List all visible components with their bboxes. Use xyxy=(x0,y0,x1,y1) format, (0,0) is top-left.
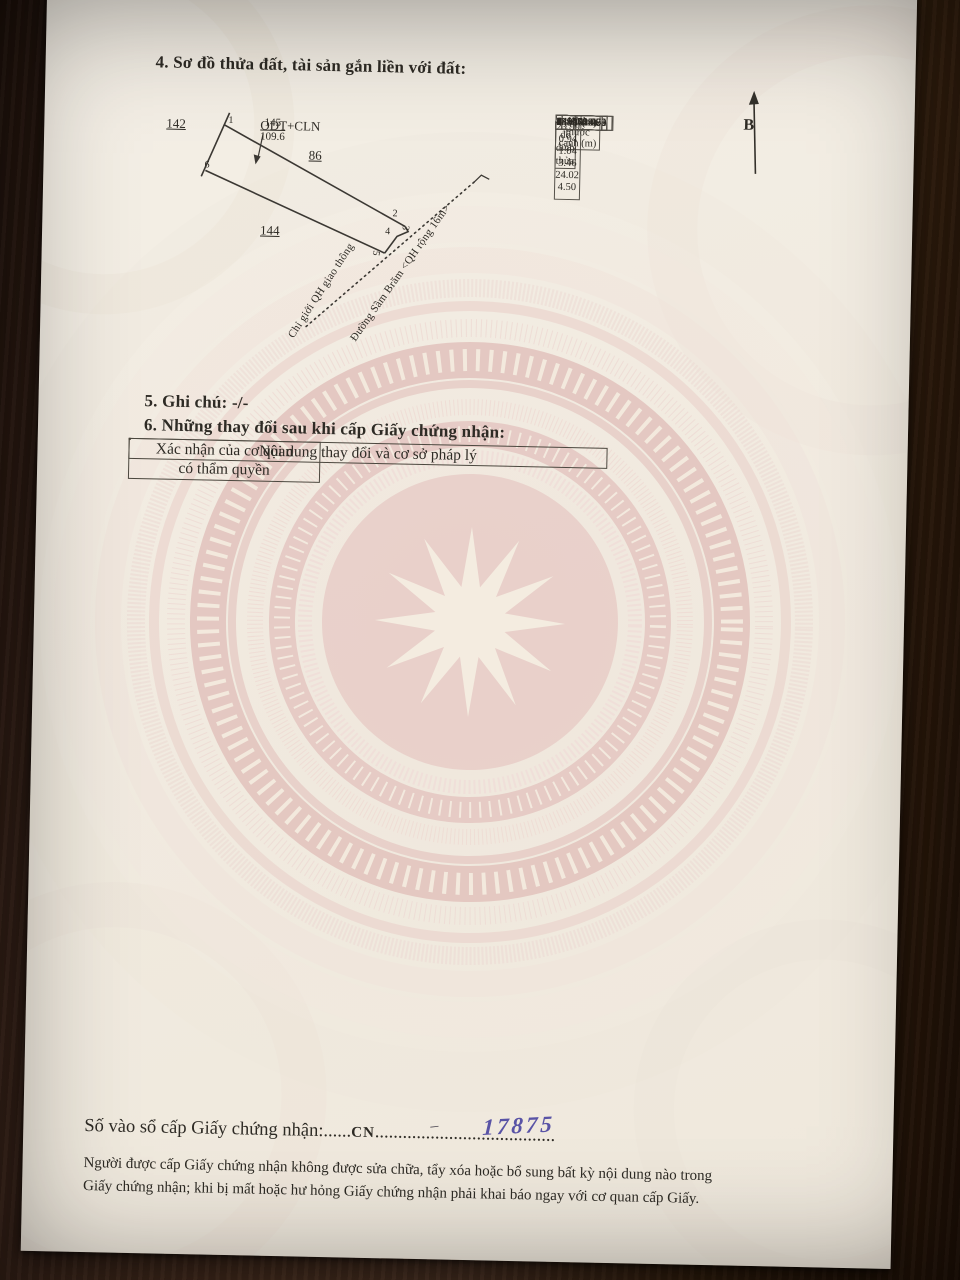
vertex-label-5: 5 xyxy=(370,250,381,257)
serial-prefix: CN xyxy=(351,1125,375,1141)
adjacent-parcel-142-label: 142 xyxy=(166,116,186,132)
planning-boundary-line xyxy=(306,172,489,331)
handwritten-serial-number: 17875 xyxy=(482,1111,556,1141)
changes-confirmation-cell xyxy=(129,438,131,440)
serial-label: Số vào sổ cấp Giấy chứng nhận: xyxy=(84,1116,324,1141)
coordinate-table: Tọa độ đỉnh thửa Kích thước cạnh (m) Đỉn… xyxy=(556,115,736,119)
handwritten-dash: – xyxy=(429,1117,439,1136)
certificate-page: 4. Sơ đồ thửa đất, tài sản gắn liền với … xyxy=(21,0,918,1269)
vertex-label-2: 2 xyxy=(392,209,397,219)
land-use-label: ODT+CLN 145 109.6 xyxy=(260,118,285,144)
serial-number-row: Số vào sổ cấp Giấy chứng nhận:......CN..… xyxy=(84,1116,804,1152)
section-4-title: 4. Sơ đồ thửa đất, tài sản gắn liền với … xyxy=(155,52,466,79)
north-label: B xyxy=(743,117,754,135)
vertex-label-1: 1 xyxy=(228,116,233,126)
land-use-code: ODT+CLN xyxy=(260,118,320,135)
serial-dots: ...... xyxy=(323,1121,351,1142)
vertex-label-6: 6 xyxy=(204,160,209,170)
planning-boundary-label: Chỉ giới QH giao thông xyxy=(286,241,357,340)
adjacent-parcel-144-label: 144 xyxy=(260,223,280,239)
section-5-title: 5. Ghi chú: -/- xyxy=(144,391,248,413)
changes-col2-header: Xác nhận của cơ quan có thẩm quyền xyxy=(128,438,321,483)
changes-table: Nội dung thay đổi và cơ sở pháp lý Xác n… xyxy=(115,438,800,1106)
footer-notice: Người được cấp Giấy chứng nhận không đượ… xyxy=(83,1152,848,1213)
inner-parcel-86-label: 86 xyxy=(309,148,322,164)
vertex-label-4: 4 xyxy=(385,227,390,237)
vertex-label-3: 3 xyxy=(399,224,410,231)
